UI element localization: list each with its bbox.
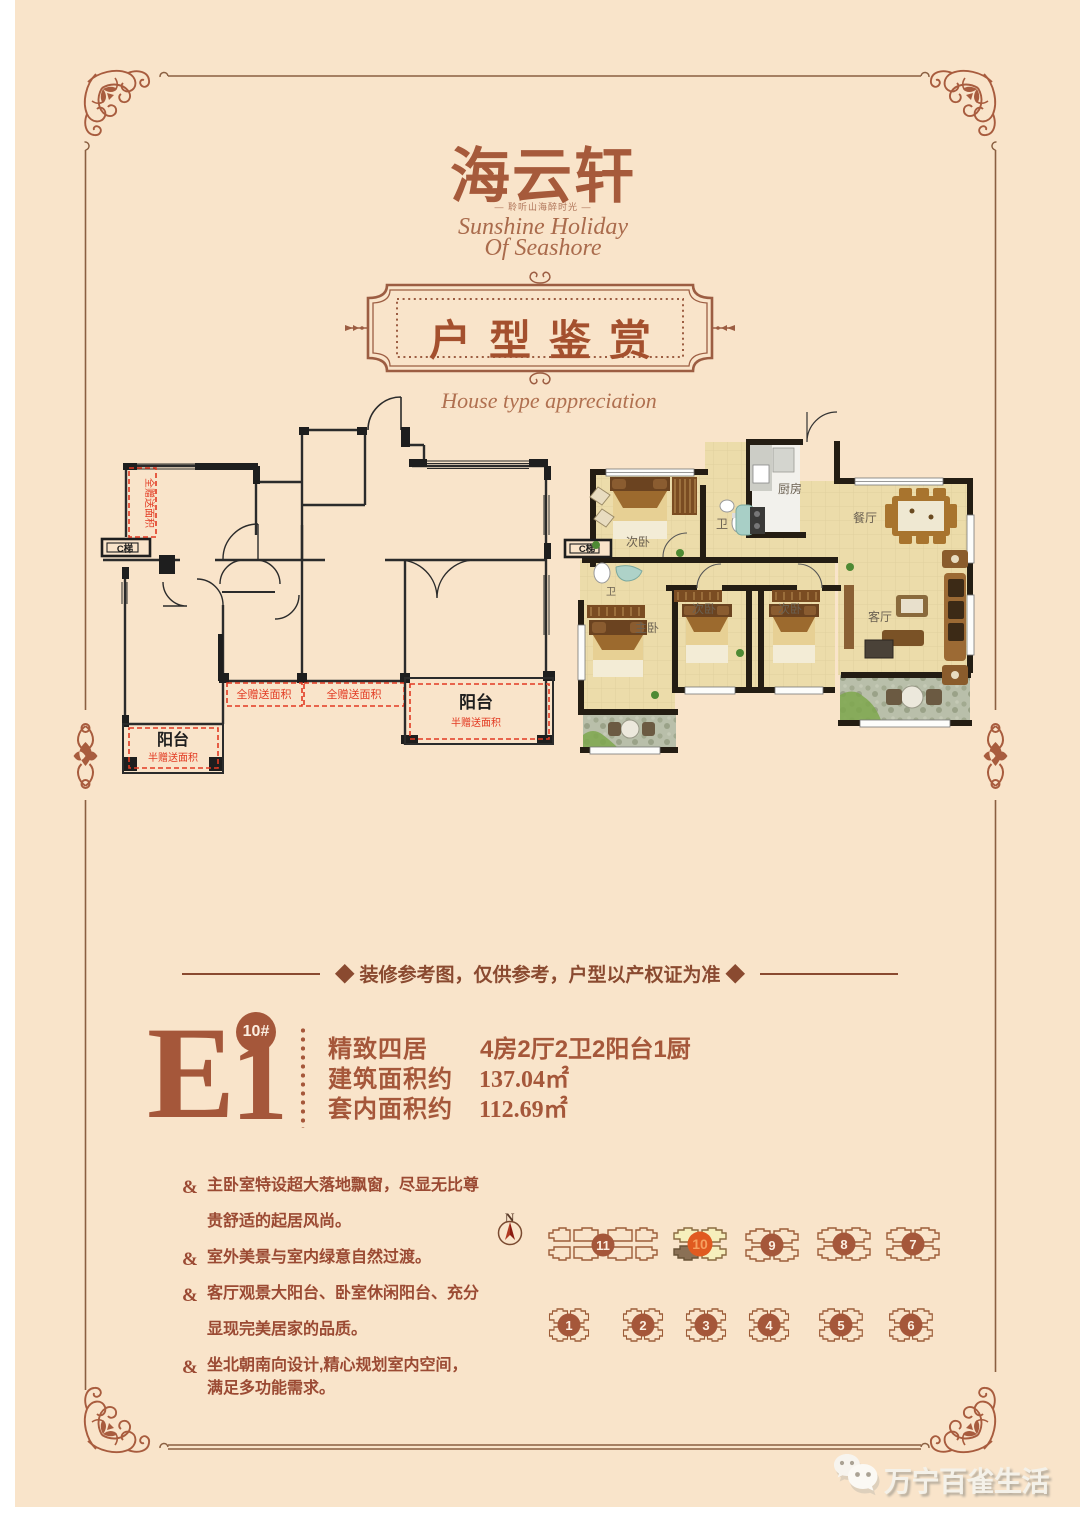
svg-text:8: 8 — [840, 1237, 847, 1252]
svg-text:1: 1 — [565, 1318, 572, 1333]
svg-text:5: 5 — [837, 1318, 844, 1333]
svg-text:9: 9 — [768, 1238, 775, 1253]
svg-text:阳台: 阳台 — [157, 730, 189, 749]
svg-text:2: 2 — [639, 1318, 646, 1333]
svg-text:7: 7 — [909, 1237, 916, 1252]
svg-text:4: 4 — [765, 1318, 773, 1333]
svg-text:餐厅: 餐厅 — [853, 510, 877, 525]
svg-text:阳台: 阳台 — [459, 692, 493, 712]
svg-text:主卧: 主卧 — [635, 621, 659, 635]
svg-text:全赠送面积: 全赠送面积 — [237, 687, 292, 701]
svg-text:3: 3 — [702, 1318, 709, 1333]
svg-text:半赠送面积: 半赠送面积 — [451, 716, 501, 729]
svg-text:厨房: 厨房 — [778, 481, 802, 496]
svg-text:全赠送面积: 全赠送面积 — [327, 687, 382, 701]
svg-text:次卧: 次卧 — [626, 535, 650, 549]
svg-text:6: 6 — [907, 1318, 914, 1333]
svg-text:半赠送面积: 半赠送面积 — [148, 751, 198, 764]
svg-text:次卧: 次卧 — [692, 602, 716, 616]
svg-text:客厅: 客厅 — [868, 609, 892, 624]
svg-text:C梯: C梯 — [117, 543, 134, 555]
svg-text:11: 11 — [596, 1238, 610, 1253]
svg-text:次卧: 次卧 — [778, 602, 802, 616]
svg-text:卫: 卫 — [716, 517, 728, 531]
svg-text:10: 10 — [692, 1236, 708, 1252]
svg-text:卫: 卫 — [606, 587, 616, 598]
svg-text:全赠送面积: 全赠送面积 — [143, 478, 156, 528]
